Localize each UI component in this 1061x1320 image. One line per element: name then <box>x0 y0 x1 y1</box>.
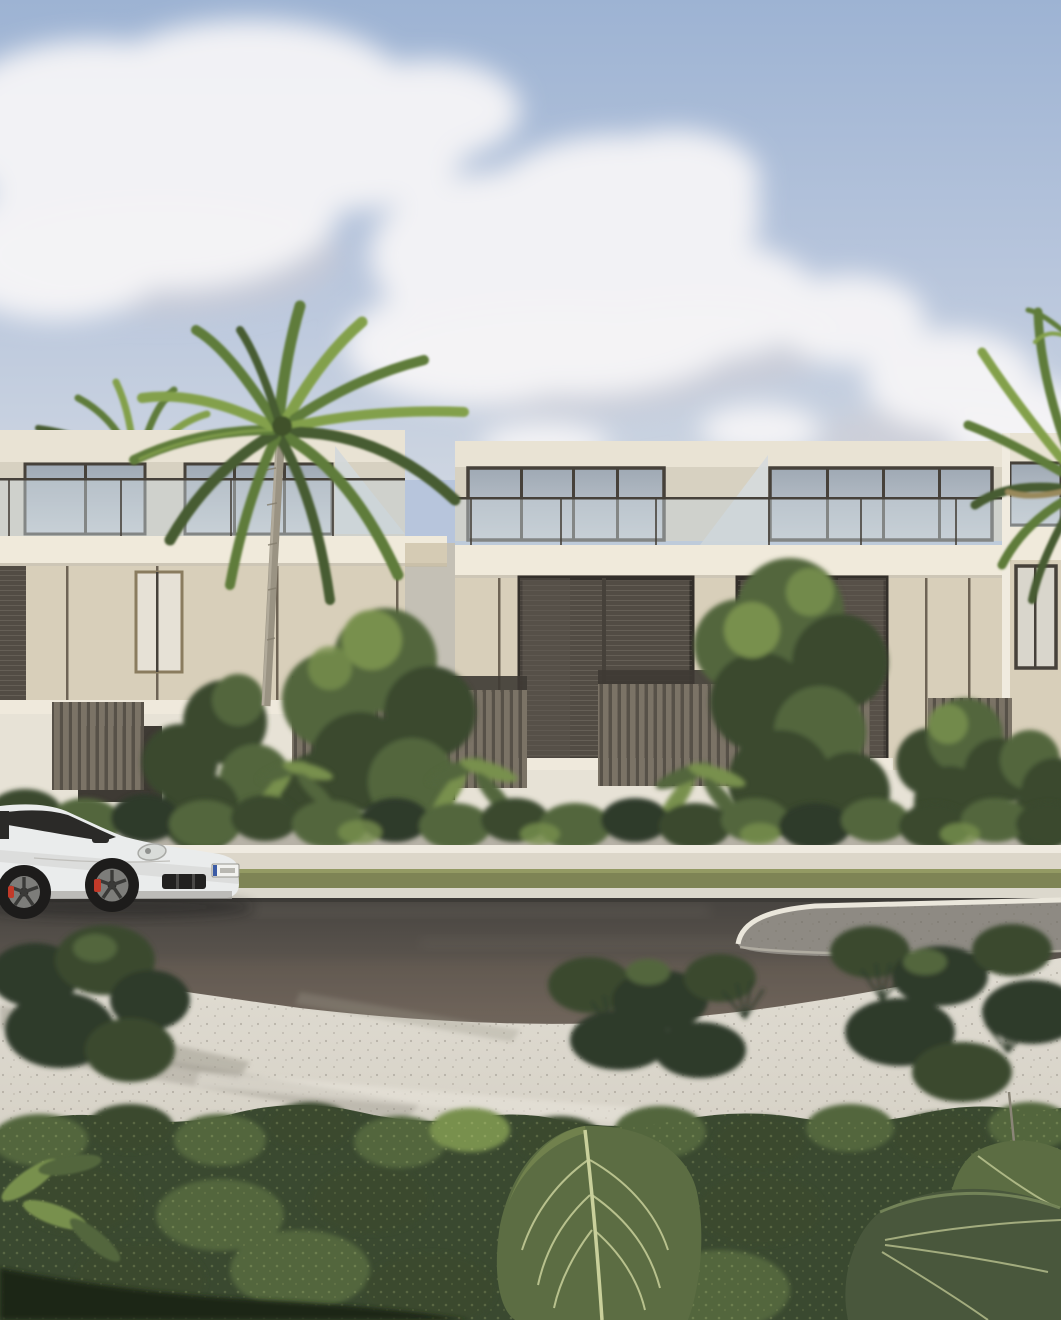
foreground-foliage <box>0 1092 1061 1320</box>
car-front-wheel <box>85 858 139 912</box>
building-middle-balustrade-glass <box>455 499 1005 545</box>
car-front-intake <box>162 874 206 889</box>
car-side-mirror <box>92 833 109 843</box>
wood-fence-1 <box>52 702 144 790</box>
architectural-rendering <box>0 0 1061 1320</box>
building-left-tall-window <box>136 572 182 672</box>
car-rear-glass <box>0 811 9 839</box>
building-middle-balustrade-rail <box>455 497 1005 500</box>
scene-canvas <box>0 0 1061 1320</box>
building-middle-parapet <box>455 441 1005 469</box>
building-middle-fascia <box>455 545 1005 578</box>
car-license-plate <box>212 864 239 877</box>
